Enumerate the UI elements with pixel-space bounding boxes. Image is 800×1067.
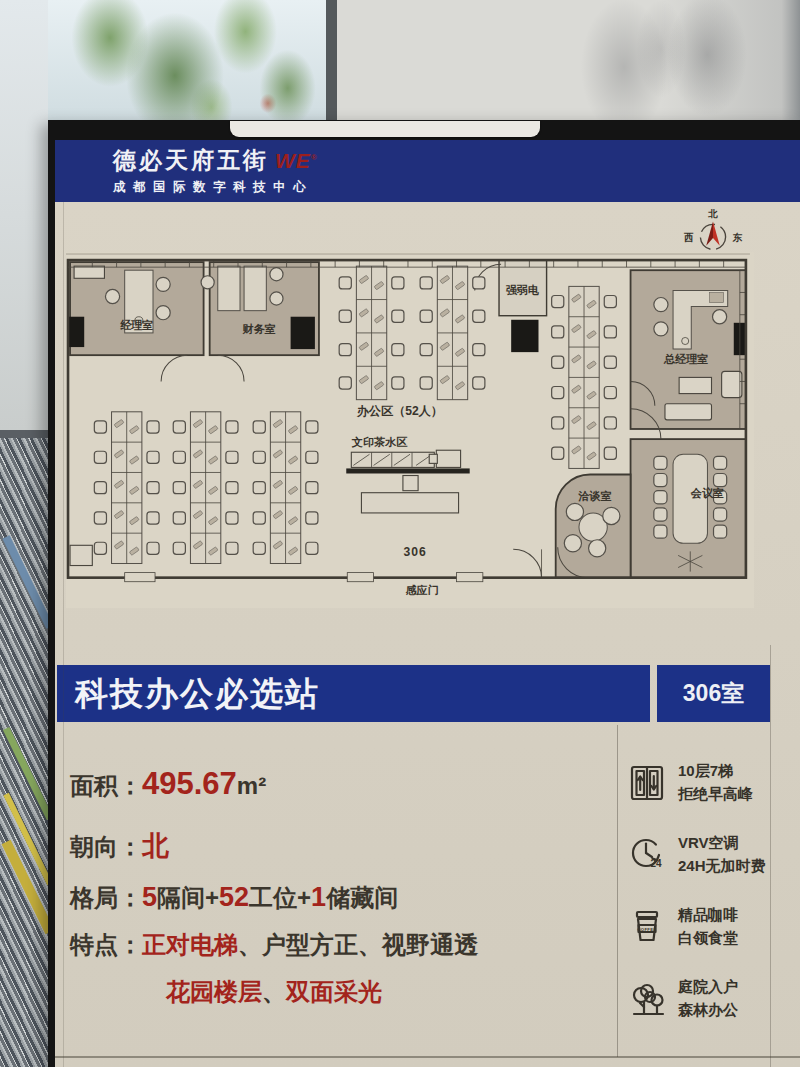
banner-title: 科技办公必选站 — [57, 665, 650, 722]
clock-24h-icon: 24 — [626, 834, 668, 876]
area-value: 495.67 — [142, 766, 237, 801]
window-with-trees — [48, 0, 330, 126]
amenity-text: 10层7梯拒绝早高峰 — [678, 760, 753, 805]
glass-wall — [337, 0, 800, 122]
details-section: 面积：495.67m² 朝向：北 格局：5隔间+52工位+1储藏间 特点：正对电… — [70, 766, 618, 1034]
meeting-room-label: 会议室 — [690, 487, 724, 499]
orientation-value: 北 — [142, 831, 169, 861]
svg-text:东: 东 — [731, 232, 742, 243]
amenity-text: 精品咖啡白领食堂 — [678, 904, 738, 949]
amenity-elevator: 10层7梯拒绝早高峰 — [626, 760, 778, 805]
amenity-garden: 庭院入户森林办公 — [626, 976, 778, 1021]
amenities-list: 10层7梯拒绝早高峰 24 VRV空调24H无加时费 — [626, 760, 778, 1021]
utility-room-label: 强弱电 — [506, 284, 540, 296]
manager-room — [70, 262, 204, 355]
svg-text:24: 24 — [650, 858, 662, 869]
area-unit: m² — [237, 772, 266, 799]
svg-text:COFFEE: COFFEE — [637, 926, 656, 931]
poster-header: 德必天府五街WE® 成都国际数字科技中心 — [55, 140, 800, 202]
carpet-stripe — [2, 840, 48, 934]
window-frame — [326, 0, 337, 127]
layout-label: 格局： — [70, 884, 142, 911]
layout-row: 格局：5隔间+52工位+1储藏间 — [70, 879, 618, 916]
svg-text:西: 西 — [683, 232, 694, 243]
svg-text:北: 北 — [707, 208, 718, 219]
poster-clip — [230, 121, 540, 137]
brand-name: 德必天府五街 — [113, 147, 269, 173]
left-wall — [0, 0, 48, 430]
gm-room-label: 总经理室 — [663, 353, 708, 365]
poster-seam — [63, 202, 64, 1067]
striped-carpet — [0, 438, 48, 1067]
floor-plan: 经理室 财务室 强弱电 总经理室 会议室 洽谈室 办公区（52人） 文印茶水区 … — [66, 252, 754, 608]
orientation-row: 朝向：北 — [70, 828, 618, 865]
carpet-stripe — [2, 535, 48, 628]
brand-logo: WE® — [275, 149, 318, 172]
area-row: 面积：495.67m² — [70, 766, 618, 804]
poster-board: 德必天府五街WE® 成都国际数字科技中心 北 南 西 东 — [48, 120, 800, 1067]
print-tea-label: 文印茶水区 — [351, 436, 408, 448]
orientation-label: 朝向： — [70, 833, 142, 860]
amenity-hvac: 24 VRV空调24H无加时费 — [626, 832, 778, 877]
features-row-2: 花园楼层、双面采光 — [166, 974, 618, 1010]
gm-room — [631, 270, 746, 429]
elevator-icon — [626, 762, 668, 804]
trees-icon — [626, 978, 668, 1020]
amenity-text: 庭院入户森林办公 — [678, 976, 738, 1021]
sensor-door-label: 感应门 — [405, 584, 438, 596]
features-row: 特点：正对电梯、户型方正、视野通透 — [70, 927, 618, 963]
manager-room-label: 经理室 — [119, 319, 153, 331]
amenity-coffee: COFFEE 精品咖啡白领食堂 — [626, 904, 778, 949]
negotiation-room-label: 洽谈室 — [577, 490, 611, 502]
features-label: 特点： — [70, 931, 142, 958]
photo-of-floorplan-poster: 德必天府五街WE® 成都国际数字科技中心 北 南 西 东 — [0, 0, 800, 1067]
banner-room-number: 306室 — [657, 665, 770, 722]
poster-seam — [55, 1056, 800, 1058]
poster-seam — [617, 725, 618, 1057]
brand-row: 德必天府五街WE® — [113, 149, 800, 172]
coffee-icon: COFFEE — [626, 906, 668, 948]
office-area-label: 办公区（52人） — [356, 404, 443, 418]
area-label: 面积： — [70, 772, 142, 799]
amenity-text: VRV空调24H无加时费 — [678, 832, 766, 877]
room-number-label: 306 — [403, 545, 426, 559]
finance-room-label: 财务室 — [242, 323, 276, 335]
poster-subtitle: 成都国际数字科技中心 — [113, 179, 800, 196]
poster-seam — [770, 645, 771, 1067]
